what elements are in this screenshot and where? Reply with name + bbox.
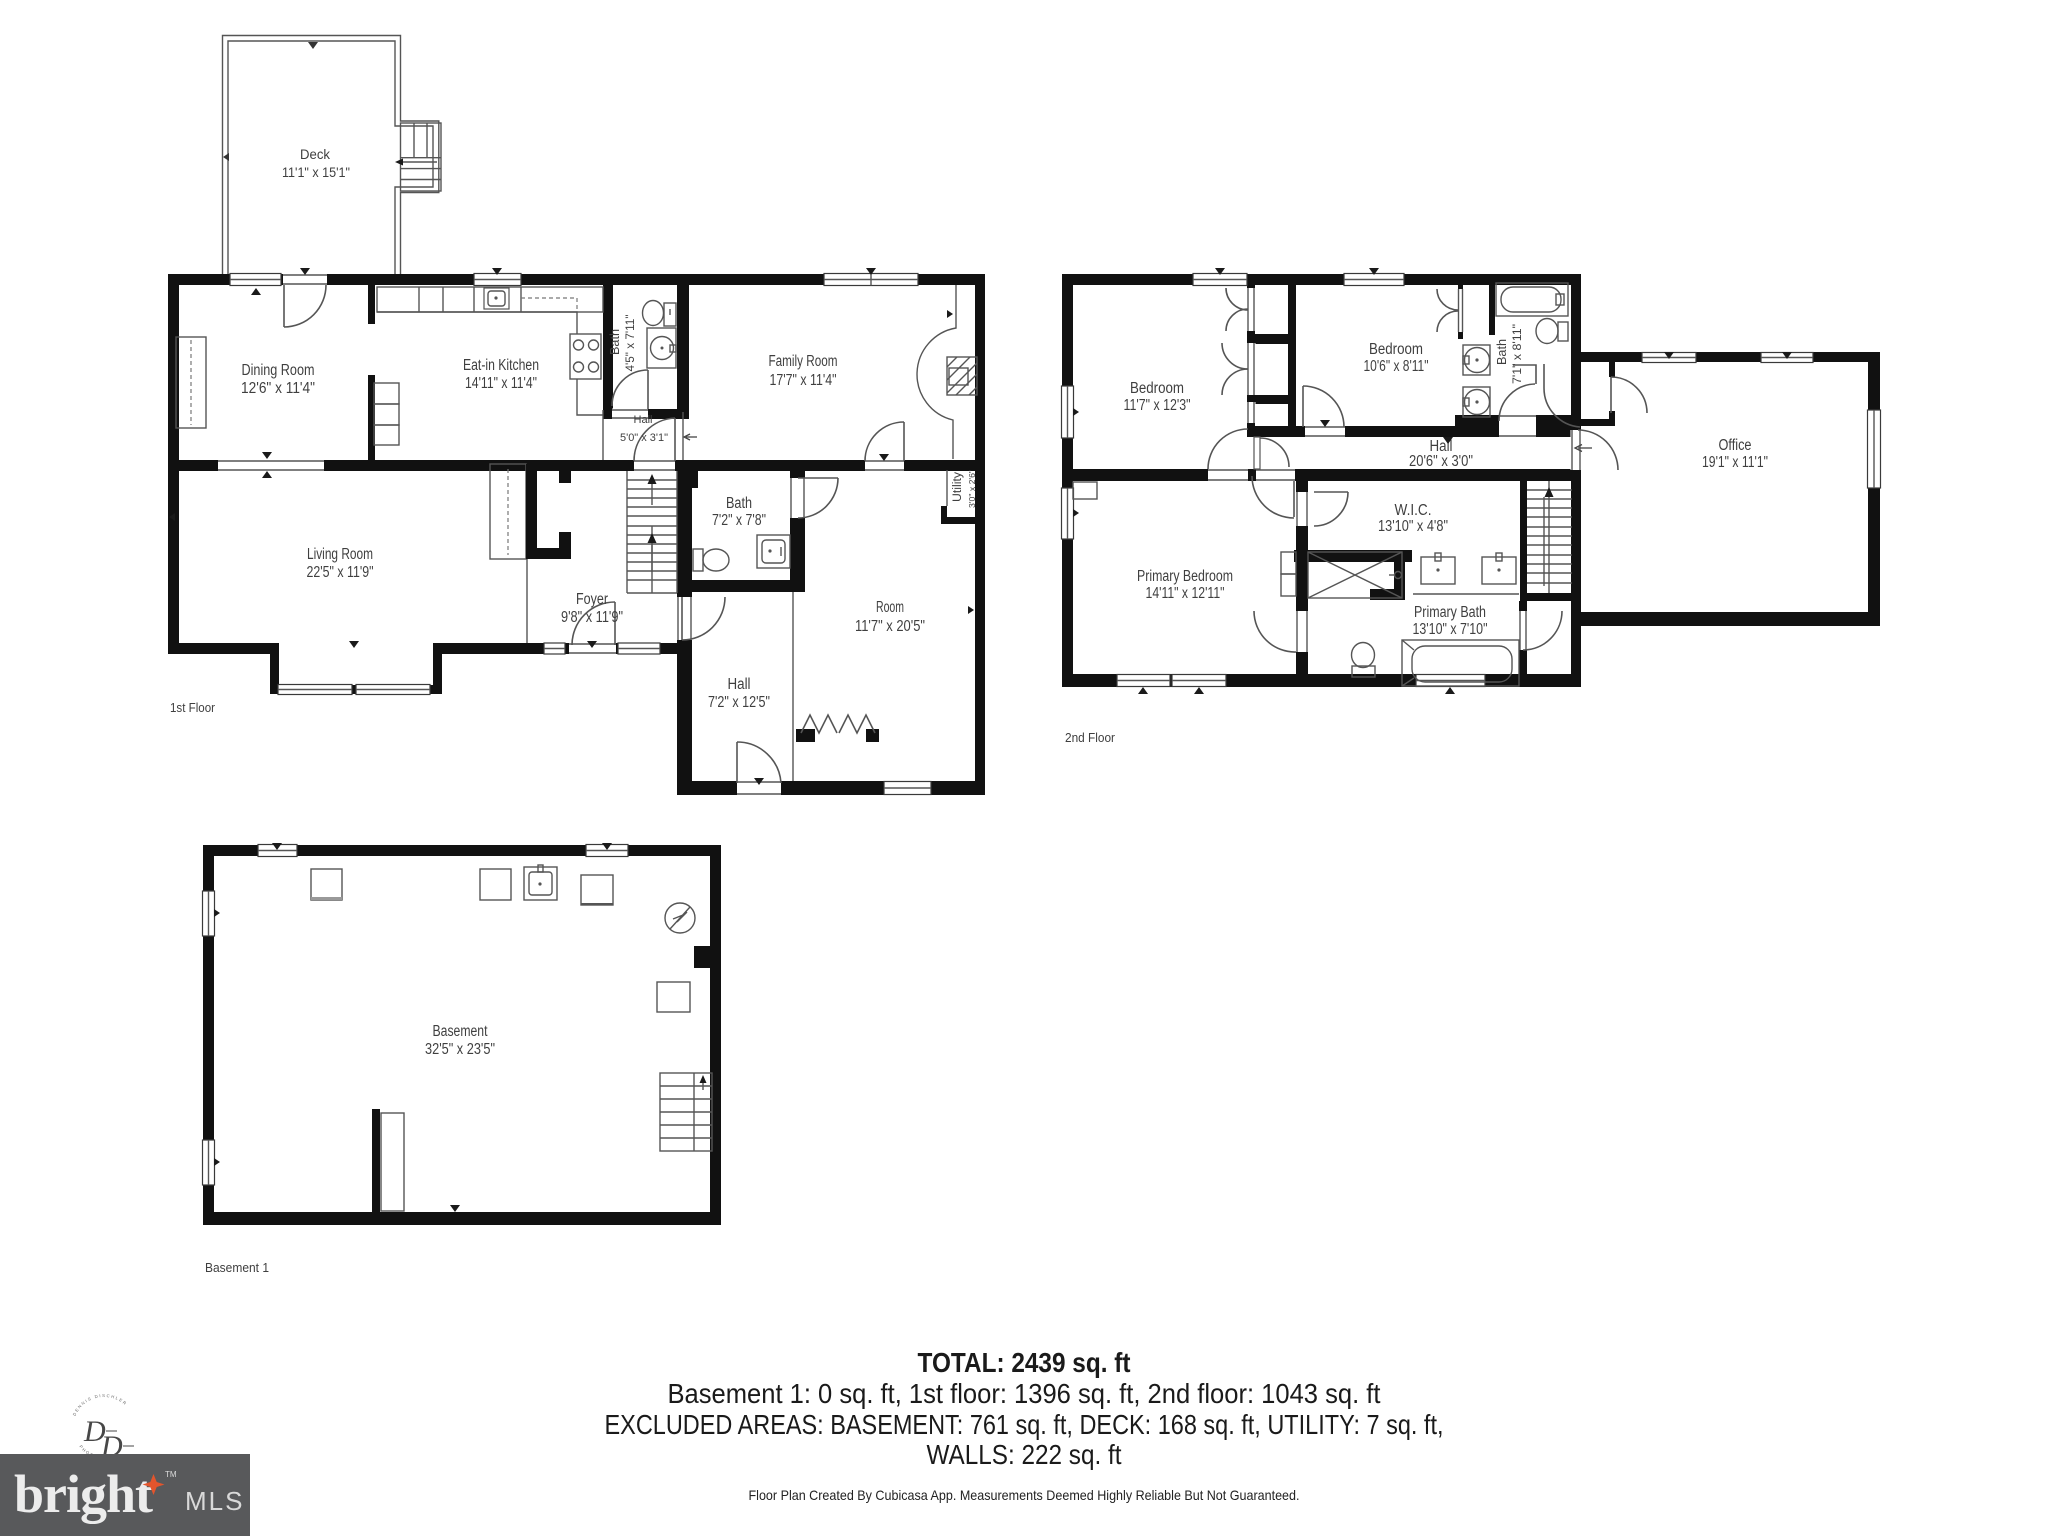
svg-text:Primary Bedroom: Primary Bedroom — [1137, 568, 1233, 585]
svg-text:13'10" x 4'8": 13'10" x 4'8" — [1378, 518, 1448, 535]
svg-text:9'8" x 11'9": 9'8" x 11'9" — [561, 609, 623, 626]
svg-text:EXCLUDED AREAS: BASEMENT: 761: EXCLUDED AREAS: BASEMENT: 761 sq. ft, DE… — [605, 1409, 1444, 1440]
svg-text:22'5" x 11'9": 22'5" x 11'9" — [307, 564, 374, 581]
svg-text:Hall: Hall — [634, 414, 653, 426]
svg-text:5'0" x 3'1": 5'0" x 3'1" — [620, 432, 668, 444]
svg-text:Dining Room: Dining Room — [242, 362, 315, 379]
svg-text:Basement 1: Basement 1 — [205, 1260, 269, 1275]
svg-text:Family Room: Family Room — [769, 353, 838, 370]
svg-text:17'7" x 11'4": 17'7" x 11'4" — [770, 372, 837, 389]
svg-text:TOTAL: 2439 sq. ft: TOTAL: 2439 sq. ft — [918, 1347, 1131, 1378]
svg-text:32'5" x 23'5": 32'5" x 23'5" — [425, 1041, 495, 1058]
svg-text:Primary Bath: Primary Bath — [1414, 604, 1486, 621]
svg-text:Bath: Bath — [726, 495, 752, 512]
svg-text:1st Floor: 1st Floor — [170, 700, 216, 715]
svg-text:11'7" x 12'3": 11'7" x 12'3" — [1124, 397, 1191, 414]
svg-text:Office: Office — [1719, 437, 1752, 454]
svg-text:Basement 1: 0 sq. ft, 1st floo: Basement 1: 0 sq. ft, 1st floor: 1396 sq… — [668, 1378, 1381, 1409]
svg-text:3'0" x 2'6": 3'0" x 2'6" — [968, 470, 977, 508]
svg-text:bright: bright — [14, 1464, 153, 1524]
svg-text:Living Room: Living Room — [307, 546, 373, 563]
svg-text:Hall: Hall — [728, 676, 751, 693]
svg-text:MLS: MLS — [185, 1486, 244, 1516]
svg-text:Bedroom: Bedroom — [1130, 380, 1184, 397]
svg-text:13'10" x 7'10": 13'10" x 7'10" — [1413, 621, 1488, 638]
svg-text:Bath: Bath — [607, 329, 622, 355]
svg-text:4'5" x 7'11": 4'5" x 7'11" — [623, 315, 637, 372]
svg-text:11'1" x 15'1": 11'1" x 15'1" — [282, 165, 350, 180]
svg-text:11'7" x 20'5": 11'7" x 20'5" — [855, 618, 925, 635]
svg-text:Bedroom: Bedroom — [1369, 341, 1423, 358]
svg-text:12'6" x 11'4": 12'6" x 11'4" — [241, 380, 315, 397]
svg-text:Foyer: Foyer — [576, 591, 608, 608]
svg-text:Room: Room — [876, 599, 904, 616]
svg-text:19'1" x 11'1": 19'1" x 11'1" — [1702, 454, 1768, 471]
svg-text:Floor Plan Created By Cubicasa: Floor Plan Created By Cubicasa App. Meas… — [749, 1487, 1300, 1503]
svg-text:7'2" x 7'8": 7'2" x 7'8" — [712, 512, 766, 529]
svg-text:2nd Floor: 2nd Floor — [1065, 730, 1116, 745]
svg-text:14'11" x 11'4": 14'11" x 11'4" — [465, 375, 537, 392]
svg-text:WALLS: 222 sq. ft: WALLS: 222 sq. ft — [927, 1439, 1122, 1470]
svg-text:7'2" x 12'5": 7'2" x 12'5" — [708, 694, 770, 711]
svg-text:W.I.C.: W.I.C. — [1395, 502, 1432, 519]
svg-text:14'11" x 12'11": 14'11" x 12'11" — [1146, 585, 1225, 602]
svg-text:7'1" x 8'11": 7'1" x 8'11" — [1510, 324, 1524, 384]
svg-text:Eat-in Kitchen: Eat-in Kitchen — [463, 357, 539, 374]
svg-text:10'6" x 8'11": 10'6" x 8'11" — [1364, 358, 1429, 375]
svg-text:Basement: Basement — [433, 1023, 489, 1040]
svg-text:TM: TM — [165, 1470, 177, 1479]
svg-text:Utility: Utility — [952, 472, 964, 502]
svg-text:Deck: Deck — [300, 147, 330, 162]
svg-text:Bath: Bath — [1494, 339, 1509, 365]
svg-text:20'6" x 3'0": 20'6" x 3'0" — [1409, 453, 1473, 470]
